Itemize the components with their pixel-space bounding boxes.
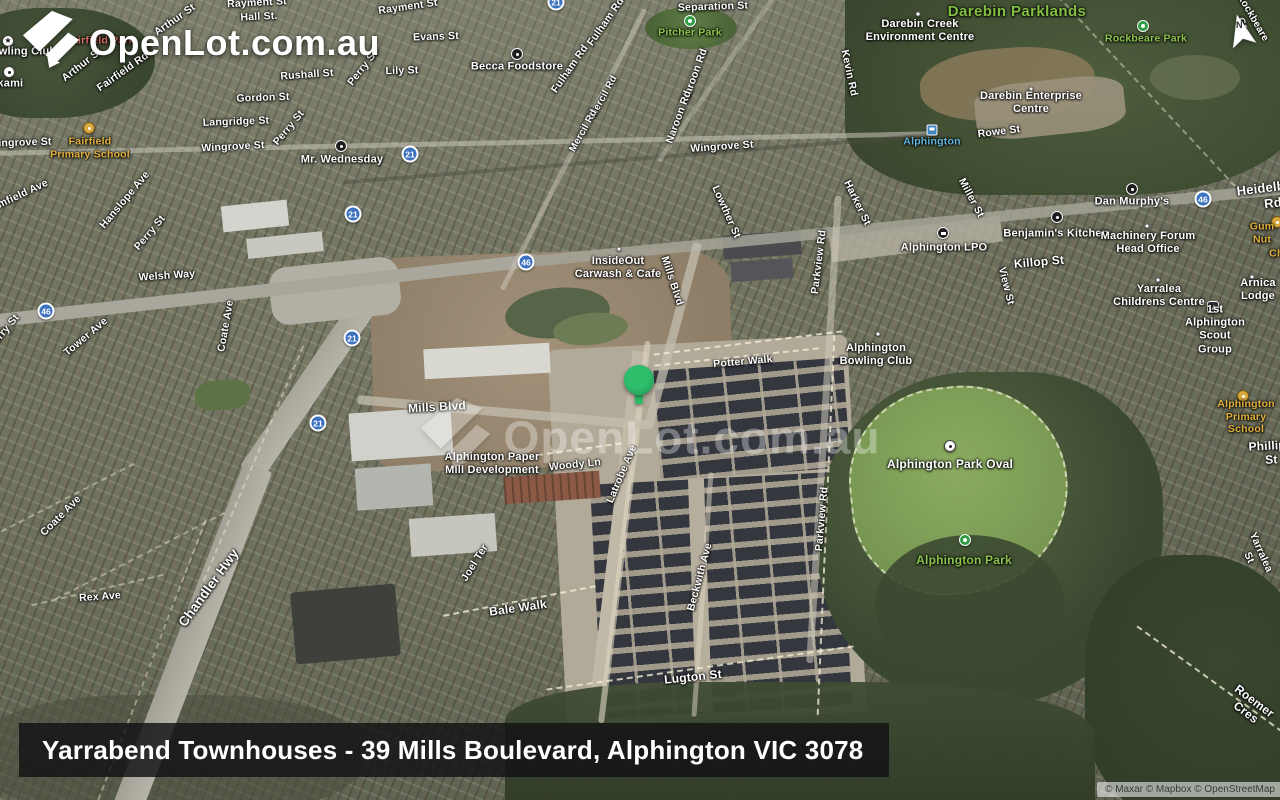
satellite-zone-right-trees bbox=[1085, 555, 1280, 800]
dot-marker-icon bbox=[1156, 278, 1161, 283]
map-attribution[interactable]: © Maxar © Mapbox © OpenStreetMap bbox=[1097, 782, 1280, 797]
coate-ave-label: Coate Ave bbox=[215, 299, 236, 353]
phillips-st-label: Phillips St bbox=[1248, 437, 1280, 468]
childcare-label: & Childcare bbox=[1269, 234, 1280, 259]
caption-bar: Yarrabend Townhouses - 39 Mills Boulevar… bbox=[19, 723, 889, 777]
killop-st-label: Killop St bbox=[1013, 253, 1065, 272]
mfield-ave-label: mfield Ave bbox=[0, 177, 50, 211]
benjamin-s-kitchen-label: Benjamin's Kitchen bbox=[1003, 227, 1108, 240]
becca-foodstore-label: Becca Foodstore bbox=[471, 60, 563, 73]
arnica-lodge-label: Arnica Lodge bbox=[1240, 277, 1275, 303]
compass-north-button[interactable]: N bbox=[1224, 12, 1258, 52]
machinery-forum-head-office-label: Machinery Forum Head Office bbox=[1101, 230, 1196, 256]
school-marker-icon bbox=[1237, 390, 1249, 402]
dot-marker-icon bbox=[876, 332, 881, 337]
satellite-zone-rockbeare-clearing bbox=[1150, 55, 1240, 100]
1st-alphington-scout-group-label: 1st Alphington Scout Group bbox=[1183, 304, 1248, 357]
property-title: Yarrabend Townhouses - 39 Mills Boulevar… bbox=[42, 735, 863, 766]
hanslope-ave-label: Hanslope Ave bbox=[97, 169, 152, 232]
compass-arrow-icon bbox=[1220, 8, 1262, 53]
gordon-st-label: Gordon St bbox=[236, 91, 290, 105]
dashed-line-coate-1 bbox=[0, 463, 135, 537]
openlot-logo-icon bbox=[22, 8, 80, 77]
watermark: OpenLot.com.au bbox=[420, 395, 881, 480]
scout-marker-icon bbox=[1207, 301, 1219, 313]
dot-marker-icon bbox=[1145, 224, 1150, 229]
watermark-logo-icon bbox=[420, 395, 492, 480]
route-shield-21: 21 bbox=[402, 146, 419, 163]
tower-ave-label: Tower Ave bbox=[62, 315, 111, 359]
route-shield-21: 21 bbox=[345, 206, 362, 223]
school-marker-icon bbox=[1271, 216, 1280, 228]
welsh-way-label: Welsh Way bbox=[138, 268, 195, 285]
map-canvas[interactable]: 2121212121464646★ Rayment StHall St.Raym… bbox=[0, 0, 1280, 800]
evans-st-label: Evans St bbox=[413, 30, 459, 44]
brand-logo[interactable]: OpenLot.com.au bbox=[22, 8, 380, 77]
satellite-zone-pitcher-park bbox=[645, 7, 737, 49]
route-shield-21: 21 bbox=[548, 0, 565, 11]
satellite-zone-warehouse-3 bbox=[409, 513, 497, 557]
alphington-primary-school-label: Alphington Primary School bbox=[1217, 398, 1274, 436]
harker-st-label: Harker St bbox=[841, 178, 874, 227]
route-shield-21: 21 bbox=[310, 415, 327, 432]
lily-st-label: Lily St bbox=[385, 64, 418, 78]
school-marker-icon bbox=[83, 122, 95, 134]
perry-st-label: Perry St bbox=[132, 213, 169, 253]
perry-st-label: Perry St bbox=[271, 108, 308, 148]
satellite-zone-dark-building bbox=[290, 584, 401, 665]
road-heidelberg-east bbox=[523, 183, 1280, 267]
yarralea-childrens-centre-label: Yarralea Childrens Centre bbox=[1113, 283, 1205, 309]
watermark-text: OpenLot.com.au bbox=[504, 410, 881, 464]
fulham-rd-label: Fulham Rd bbox=[549, 42, 591, 95]
satellite-zone-park-trees bbox=[875, 535, 1065, 675]
satellite-zone-shops-2 bbox=[246, 231, 324, 259]
satellite-zone-apartments-2 bbox=[730, 258, 793, 282]
view-st-label: View St bbox=[995, 266, 1017, 306]
poi-black-marker-icon bbox=[511, 48, 523, 60]
pin-head bbox=[624, 365, 654, 395]
brand-logo-text: OpenLot.com.au bbox=[89, 22, 380, 64]
mr-wednesday-label: Mr. Wednesday bbox=[301, 153, 383, 166]
langridge-st-label: Langridge St bbox=[203, 115, 270, 130]
alphington-bowling-club-label: Alphington Bowling Club bbox=[840, 342, 913, 368]
wingrove-st-label: Wingrove St bbox=[0, 136, 52, 151]
compass-north-letter: N bbox=[1236, 20, 1243, 30]
rayment-st-label: Rayment St bbox=[378, 0, 439, 17]
satellite-zone-shops-1 bbox=[221, 200, 289, 233]
gum-nut-label: Gum Nut bbox=[1250, 220, 1275, 245]
satellite-zone-green-patch bbox=[194, 378, 251, 413]
lowther-st-label: Lowther St bbox=[709, 184, 743, 241]
fulham-rd-label: Fulham Rd bbox=[585, 0, 627, 49]
dot-marker-icon bbox=[1250, 275, 1255, 280]
attribution-text: © Maxar © Mapbox © OpenStreetMap bbox=[1105, 784, 1275, 795]
